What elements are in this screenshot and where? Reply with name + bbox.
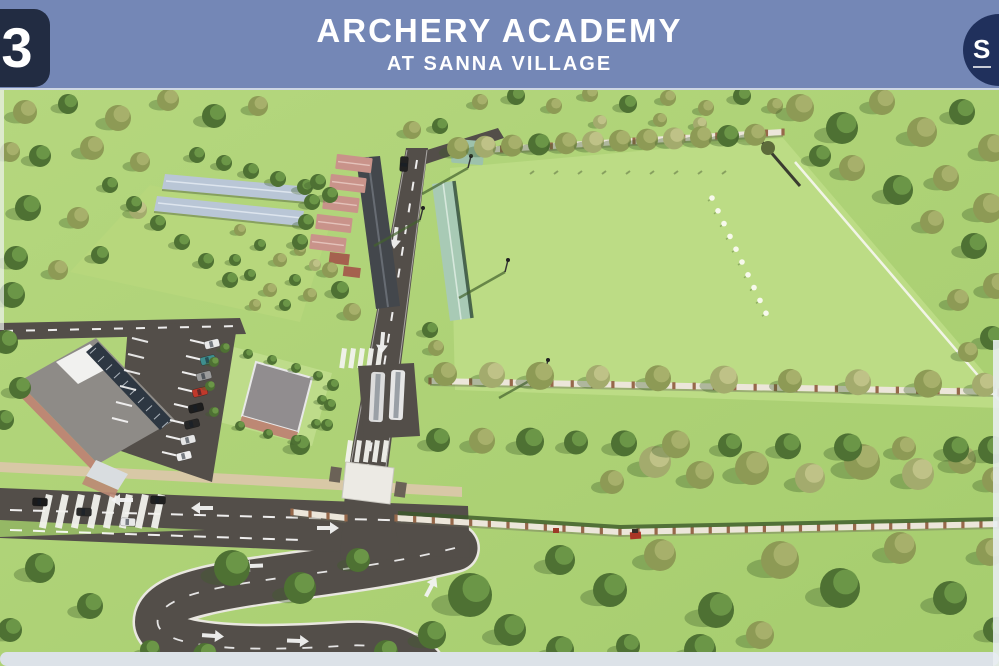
target-marker — [709, 195, 715, 201]
page-title: ARCHERY ACADEMY — [0, 12, 999, 50]
target-marker — [727, 234, 733, 240]
target-marker — [733, 246, 739, 252]
target-marker — [745, 272, 751, 278]
car — [150, 496, 165, 505]
target-marker — [739, 259, 745, 265]
bottom-edge — [0, 652, 999, 666]
target-marker — [715, 208, 721, 214]
title-block: ARCHERY ACADEMY AT SANNA VILLAGE — [0, 0, 999, 76]
target-marker — [721, 221, 727, 227]
target-marker — [757, 298, 763, 304]
car — [399, 156, 408, 172]
target-marker — [763, 310, 769, 316]
small-roof — [343, 266, 361, 278]
gate-booth — [329, 466, 342, 482]
bus — [389, 370, 406, 421]
slide: 3 ARCHERY ACADEMY AT SANNA VILLAGE S — [0, 0, 999, 666]
tractor — [553, 528, 559, 533]
left-edge — [0, 90, 4, 330]
logo-monogram: S — [973, 34, 990, 64]
right-edge — [993, 340, 999, 666]
gate-canopy — [342, 462, 394, 504]
car — [76, 508, 91, 517]
target-marker — [751, 285, 757, 291]
site-render — [0, 90, 999, 666]
car — [120, 518, 135, 527]
gate-booth — [394, 481, 407, 497]
page-subtitle: AT SANNA VILLAGE — [0, 53, 999, 76]
slide-header: 3 ARCHERY ACADEMY AT SANNA VILLAGE S — [0, 0, 999, 90]
bus — [369, 372, 386, 423]
bus-bay — [358, 363, 420, 439]
car — [32, 498, 47, 507]
